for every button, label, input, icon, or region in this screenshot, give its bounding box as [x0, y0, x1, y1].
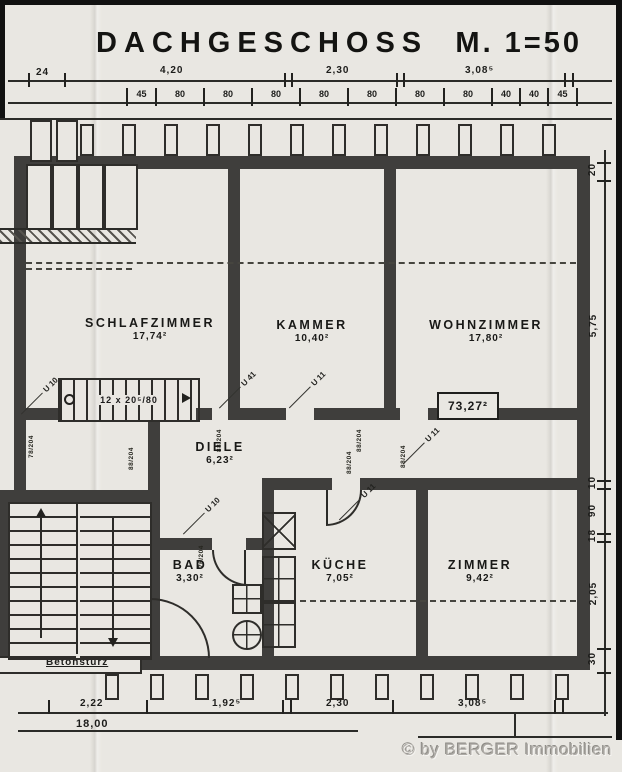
beam-line	[289, 386, 311, 408]
wall-diele-north	[240, 408, 286, 420]
wall-west	[14, 156, 26, 490]
dim-tick	[597, 488, 611, 490]
dim-tick	[146, 700, 148, 714]
window-post	[240, 674, 254, 700]
window-post	[150, 674, 164, 700]
dim-tick	[597, 162, 611, 164]
dim-seg: 40	[493, 88, 521, 106]
chimney-shaft	[104, 164, 138, 230]
roof-post	[206, 124, 220, 156]
dim-bottom-230: 2,30	[326, 698, 349, 709]
dim-segment-row: 45 80 80 80 80 80 80 80 40 40 45	[126, 88, 578, 106]
dim-label-24: 24	[36, 67, 49, 78]
room-area: 7,05²	[295, 573, 385, 584]
room-name: KÜCHE	[295, 558, 385, 572]
dim-seg: 80	[253, 88, 301, 106]
dim-tick	[554, 700, 556, 714]
bad-door-leaf	[244, 550, 246, 584]
dim-tick	[597, 180, 611, 182]
roof-post	[122, 124, 136, 156]
eaves-line	[0, 118, 612, 120]
wall-diele-south	[274, 478, 332, 490]
beam-line	[183, 512, 205, 534]
dashed-line-lower	[300, 600, 576, 602]
chimney-shaft	[26, 164, 52, 230]
washbasin-fixture	[232, 620, 262, 650]
title-scale: M. 1=50	[455, 27, 582, 60]
dim-seg: 45	[126, 88, 157, 106]
roof-post	[500, 124, 514, 156]
stair-arrow-down	[108, 638, 118, 647]
window-post	[465, 674, 479, 700]
dim-seg: 45	[549, 88, 578, 106]
wall-kammer-wohn	[384, 156, 396, 420]
scan-mark	[514, 714, 516, 738]
dashed-line-left	[26, 268, 132, 270]
dim-seg: 80	[205, 88, 253, 106]
dim-seg: 80	[397, 88, 445, 106]
dim-tick	[597, 480, 611, 482]
stair-walkline-up	[40, 516, 42, 638]
dim-right-20: 20	[587, 163, 598, 176]
door-size-tag: 88/204	[356, 429, 363, 452]
dim-tick	[597, 672, 611, 674]
bathtub-arc	[150, 598, 210, 658]
dim-right-10: 10	[587, 476, 598, 489]
dim-right-18: 18	[587, 529, 598, 542]
dim-bottom-222: 2,22	[80, 698, 103, 709]
stair-direction-arrow	[182, 393, 191, 403]
door-size-tag: 88/204	[128, 447, 135, 470]
dim-right-575: 5,75	[588, 314, 599, 337]
roof-post	[542, 124, 556, 156]
dim-right-205: 2,05	[588, 582, 599, 605]
room-name: SCHLAFZIMMER	[70, 316, 230, 330]
stair-upper: 12 x 20⁵/80	[58, 378, 200, 422]
beam-text: U 41	[239, 370, 257, 388]
wall-schlaf-kammer	[228, 156, 240, 420]
dashed-line-upper	[26, 262, 576, 264]
sink-fixture	[262, 556, 296, 602]
window-post	[195, 674, 209, 700]
chimney-shaft	[30, 120, 52, 162]
dim-tick	[284, 73, 286, 87]
roof-post	[290, 124, 304, 156]
dim-seg: 40	[521, 88, 549, 106]
dim-line-bottom	[18, 712, 608, 714]
room-name: DIELE	[180, 440, 260, 454]
wc-fixture	[232, 584, 262, 614]
room-kammer: KAMMER 10,40²	[252, 318, 372, 344]
dim-seg: 80	[349, 88, 397, 106]
dim-line-right	[604, 150, 606, 716]
dim-span-308: 3,08⁵	[465, 65, 494, 76]
window-post	[510, 674, 524, 700]
room-kueche: KÜCHE 7,05²	[295, 558, 385, 584]
room-bad: BAD 3,30²	[158, 558, 222, 584]
dim-tick	[403, 73, 405, 87]
room-area: 10,40²	[252, 333, 372, 344]
window-post	[420, 674, 434, 700]
room-area: 6,23²	[180, 455, 260, 466]
beam-text: U 11	[309, 370, 327, 388]
roof-post	[458, 124, 472, 156]
wall-south	[140, 656, 590, 670]
window-post	[375, 674, 389, 700]
room-name: ZIMMER	[420, 558, 540, 572]
wall-diele-north	[314, 408, 400, 420]
room-diele: DIELE 6,23²	[180, 440, 260, 466]
dim-tick	[291, 73, 293, 87]
dim-total-1800: 18,00	[76, 718, 109, 730]
chimney-shaft	[78, 164, 104, 230]
door-size-tag: 88/204	[400, 445, 407, 468]
dim-span-230: 2,30	[326, 65, 349, 76]
dim-tick	[64, 73, 66, 87]
roof-post	[164, 124, 178, 156]
room-area: 9,42²	[420, 573, 540, 584]
total-area-value: 73,27²	[448, 399, 488, 413]
beam-text: U 10	[203, 496, 221, 514]
room-wohnzimmer: WOHNZIMMER 17,80²	[416, 318, 556, 344]
stair-start-dot	[64, 394, 75, 405]
chimney-shaft	[56, 120, 78, 162]
dim-line-total	[18, 730, 358, 732]
door-size-tag: 78/204	[28, 435, 35, 458]
frame-top	[0, 0, 622, 5]
roof-post	[374, 124, 388, 156]
sink-fixture	[262, 602, 296, 648]
dim-span-420: 4,20	[160, 65, 183, 76]
total-area-box: 73,27²	[437, 392, 499, 420]
dim-tick	[564, 73, 566, 87]
frame-right	[616, 0, 622, 740]
flue-x-box	[262, 512, 296, 550]
frame-left	[0, 0, 5, 118]
dim-tick	[597, 648, 611, 650]
dim-tick	[396, 73, 398, 87]
dim-seg: 80	[157, 88, 205, 106]
dim-tick	[290, 700, 292, 714]
window-post	[555, 674, 569, 700]
dim-tick	[572, 73, 574, 87]
window-post	[330, 674, 344, 700]
room-area: 17,80²	[416, 333, 556, 344]
dim-tick	[597, 533, 611, 535]
dim-line-top	[8, 80, 612, 82]
beam-text: U 11	[423, 426, 441, 444]
dim-bottom-3085: 3,08⁵	[458, 698, 487, 709]
room-name: KAMMER	[252, 318, 372, 332]
room-schlafzimmer: SCHLAFZIMMER 17,74²	[70, 316, 230, 342]
floor-plan-sheet: DACHGESCHOSS M. 1=50 24 4,20 2,30 3,08⁵ …	[0, 0, 622, 772]
stair-flight-right	[80, 504, 150, 658]
room-name: WOHNZIMMER	[416, 318, 556, 332]
door-size-tag: 88/204	[346, 451, 353, 474]
roof-post	[416, 124, 430, 156]
room-zimmer: ZIMMER 9,42²	[420, 558, 540, 584]
dim-tick	[48, 700, 50, 714]
dim-seg: 80	[445, 88, 493, 106]
dim-tick	[282, 700, 284, 714]
hatched-wall	[0, 228, 136, 244]
stair-arrow-up	[36, 508, 46, 517]
window-post	[285, 674, 299, 700]
dim-tick	[28, 73, 30, 87]
dim-right-90: 90	[587, 504, 598, 517]
watermark-text: © by BERGER Immobilien	[402, 740, 612, 760]
title-text: DACHGESCHOSS	[96, 27, 428, 60]
wall-stairbay-north	[0, 490, 148, 502]
roof-post	[248, 124, 262, 156]
wall-diele-south	[360, 478, 590, 490]
kueche-door-leaf	[326, 490, 328, 524]
stair-flight-left	[10, 504, 76, 658]
beam-label: U 11	[286, 370, 327, 411]
dim-bottom-1925: 1,92⁵	[212, 698, 241, 709]
stair-divider	[76, 504, 78, 654]
roof-post	[332, 124, 346, 156]
stair-walkline-down	[112, 518, 114, 640]
dim-tick	[392, 700, 394, 714]
beam-label: U 10	[180, 496, 222, 538]
roof-post	[80, 124, 94, 156]
chimney-shaft	[52, 164, 78, 230]
dim-tick	[562, 700, 564, 714]
room-area: 17,74²	[70, 331, 230, 342]
stair-main	[8, 502, 152, 660]
window-post	[105, 674, 119, 700]
dim-tick	[597, 541, 611, 543]
stair-note: 12 x 20⁵/80	[97, 395, 161, 405]
drawing-title: DACHGESCHOSS M. 1=50	[96, 24, 582, 62]
room-name: BAD	[158, 558, 222, 572]
room-area: 3,30²	[158, 573, 222, 584]
dim-right-30: 30	[587, 652, 598, 665]
dim-seg: 80	[301, 88, 349, 106]
